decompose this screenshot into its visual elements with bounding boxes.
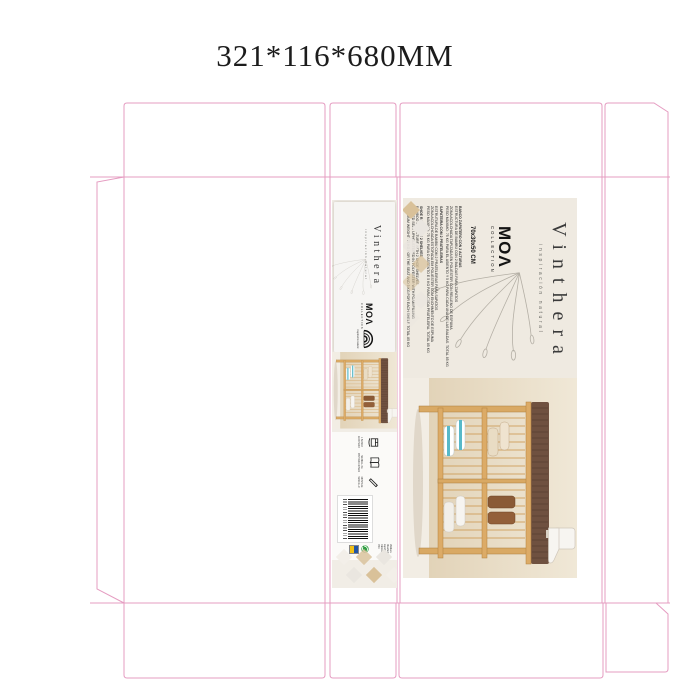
rainbow-caption: inspiración natural — [356, 326, 358, 352]
dieline-bottom-flap-left — [124, 603, 325, 678]
brand-wordmark-large: Vinthera — [547, 198, 570, 378]
side-panel-print: Vinthera inspiración natural MOΛ COLLECT… — [332, 200, 397, 588]
rainbow-arcs-icon — [363, 329, 375, 349]
box-contents-icon — [368, 436, 381, 449]
manual-book-icon — [368, 456, 381, 469]
brand-tagline: inspiración natural — [364, 206, 368, 302]
manual-caption: MANUAL DE INSTRUCCIONES — [357, 453, 363, 471]
main-panel-artwork: Vinthera inspiración natural MOΛ COLLECT… — [403, 198, 577, 578]
barcode-digits-strip — [343, 499, 347, 539]
moa-collection-label: COLLECTION — [360, 303, 363, 330]
assembly-icon-cell: MONTAJE SENCILLO — [357, 473, 382, 491]
contents-icon-cell: 1 BANCO ZAPATERO — [357, 433, 382, 451]
desc-es-line3: PESO MÁXIMO: 75 KG PARA EL ASIENTO Y 5 K… — [445, 206, 449, 372]
assembly-tool-icon — [368, 476, 381, 489]
moa-collection-label-large: COLLECTION — [490, 226, 495, 274]
barcode-card — [337, 495, 373, 543]
main-panel-print: Vinthera inspiración natural MOΛ COLLECT… — [403, 198, 577, 578]
dieline-bottom-flap-right — [606, 603, 668, 672]
desc-es-header: BANCO ZAPATERO CON 2 ALTURAS — [458, 206, 462, 372]
side-panel-artwork: Vinthera inspiración natural MOΛ COLLECT… — [332, 200, 397, 588]
barcode-icon — [348, 499, 368, 539]
dieline-bottom-flap-side — [330, 603, 396, 678]
product-size-heading: 70x30x50 CM — [469, 226, 475, 264]
dieline-top-flap-left — [124, 103, 325, 177]
page-title: 321*116*680MM — [216, 38, 453, 74]
desc-pt-header: SAPATEIRA COM 2 PRATELEIRAS — [438, 206, 442, 372]
desc-es-line2: ZONA ACOLCHADA TAPIZADA EN POLIÉSTER CON… — [449, 206, 453, 372]
desc-pt-line1: ESTRUTURA DE BAMBU COM 2 PRATELEIRAS PAR… — [434, 206, 438, 372]
dieline-top-flap-right — [605, 103, 668, 177]
brand-wordmark: Vinthera — [371, 206, 382, 302]
manual-icon-cell: MANUAL DE INSTRUCCIONES — [357, 453, 382, 471]
brand-card: Vinthera inspiración natural MOΛ COLLECT… — [334, 202, 395, 352]
dieline-bottom-flap-main — [399, 603, 603, 678]
packaging-icons-strip: 1 BANCO ZAPATERO MANUAL DE INSTRUCCIONES — [332, 432, 397, 492]
product-photo-small — [332, 352, 397, 432]
product-photo-large — [403, 378, 577, 578]
moa-logo-large: MOΛ — [496, 226, 513, 268]
moa-logo: MOΛ — [364, 303, 373, 325]
brand-tagline-large: inspiración natural — [537, 198, 543, 378]
desc-pt-line2: ZONA ACOLCHOADA ESTOFADA EM POLIÉSTER CO… — [430, 206, 434, 372]
assembly-caption: MONTAJE SENCILLO — [357, 473, 363, 491]
diamond-pattern-side — [332, 546, 397, 588]
dieline-top-flap-main — [400, 103, 602, 177]
diamond-pattern-main — [403, 200, 429, 332]
desc-es-line1: ESTRUCTURA DE BAMBÚ CON 2 BALDAS PARA ZA… — [453, 206, 457, 372]
dieline-glue-flap — [97, 177, 124, 603]
dieline-top-flap-side — [330, 103, 396, 177]
dieline-document: 321*116*680MM Vinthera inspiración natur… — [0, 0, 700, 700]
contents-caption: 1 BANCO ZAPATERO — [357, 433, 363, 451]
